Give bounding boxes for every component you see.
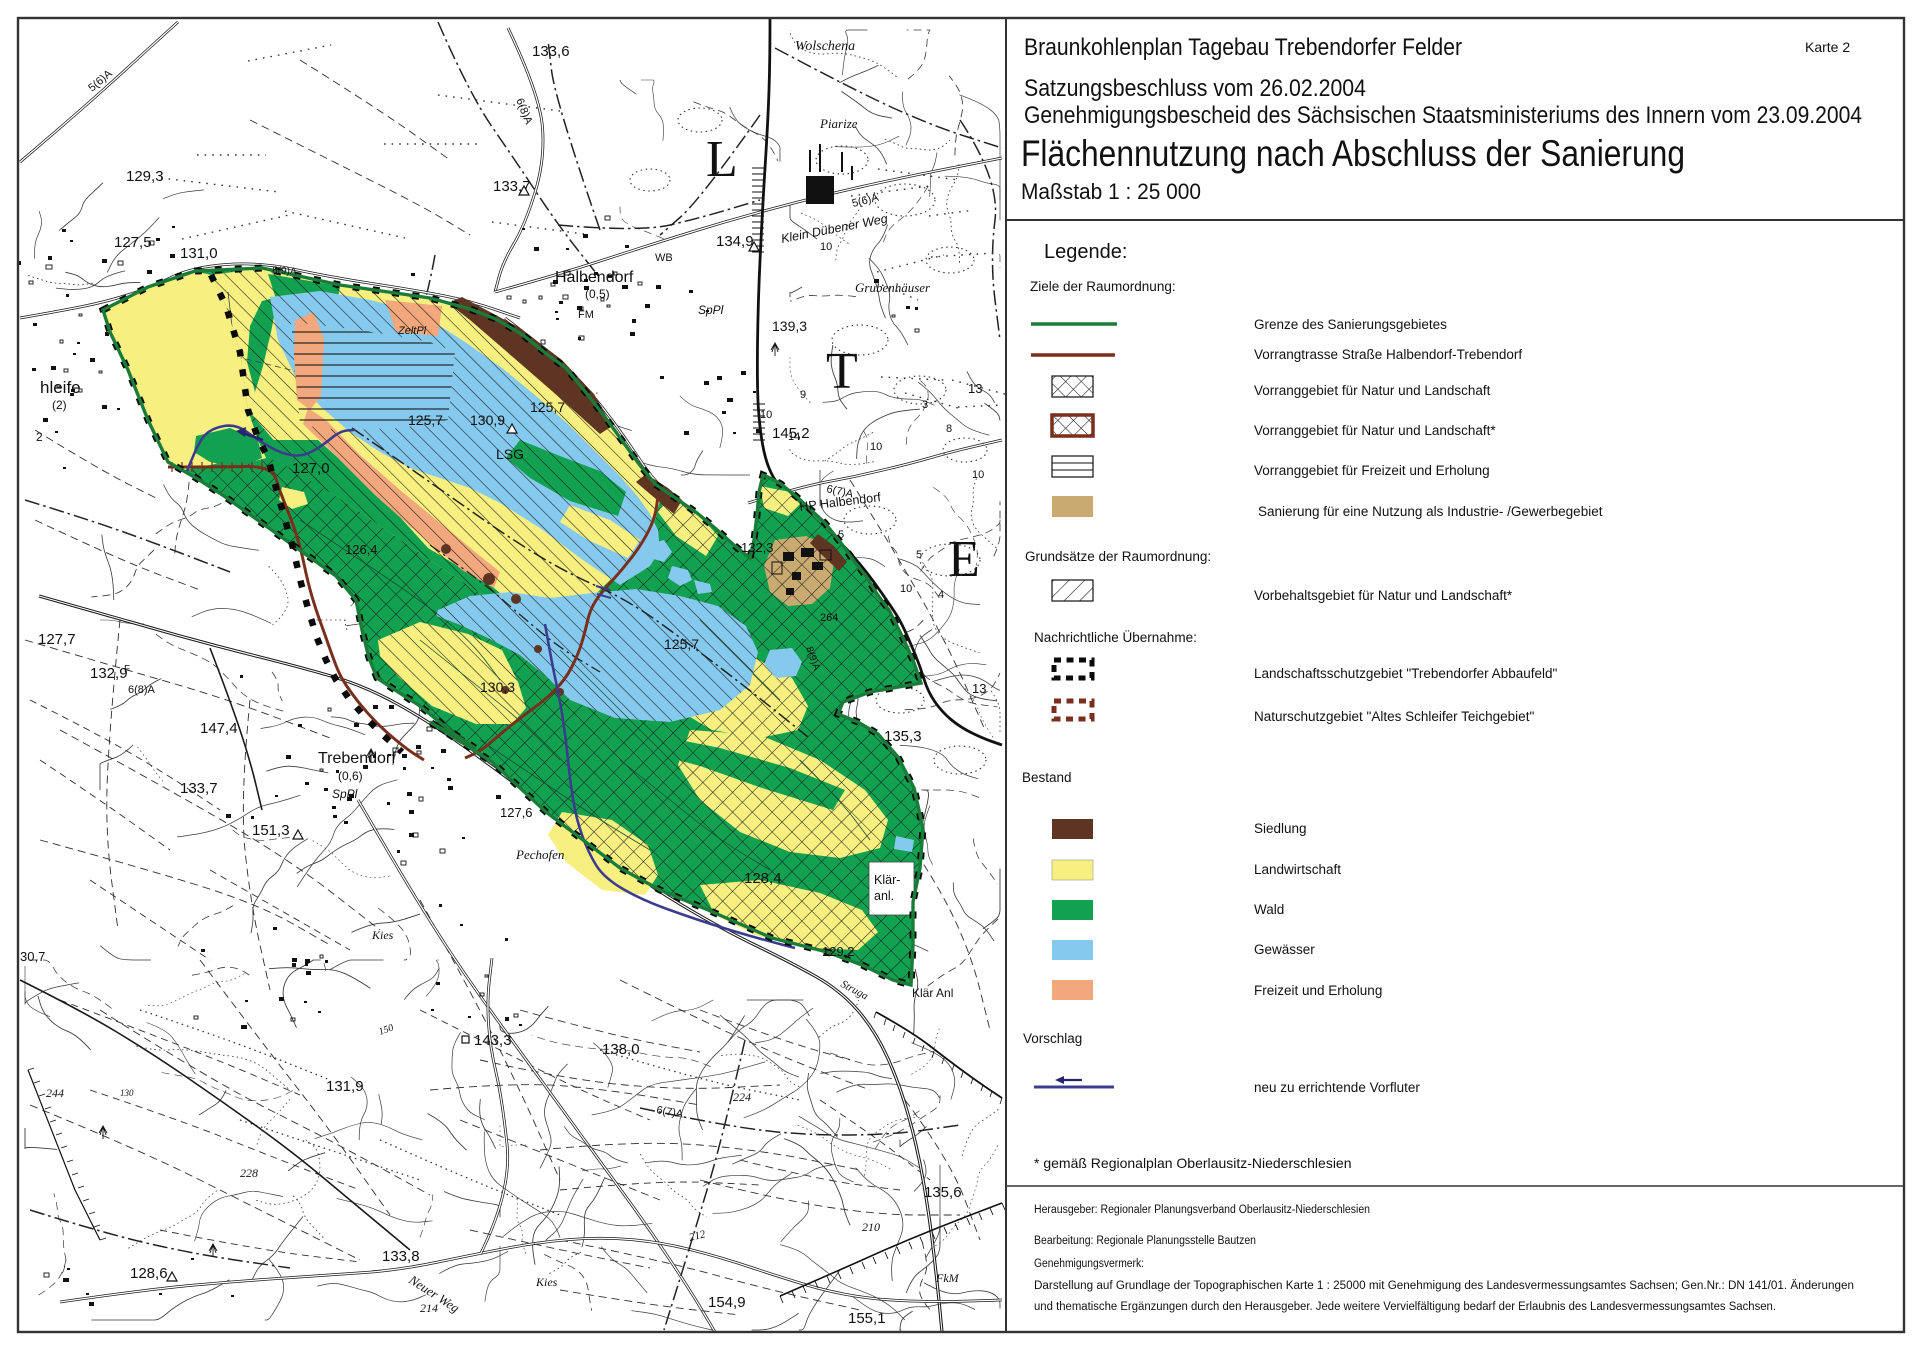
svg-text:5: 5 bbox=[838, 529, 844, 541]
svg-text:Grenze des Sanierungsgebietes: Grenze des Sanierungsgebietes bbox=[1254, 317, 1447, 332]
svg-text:154,9: 154,9 bbox=[708, 1294, 746, 1311]
svg-text:5: 5 bbox=[916, 549, 922, 561]
svg-text:126,4: 126,4 bbox=[345, 542, 378, 557]
svg-text:10: 10 bbox=[760, 409, 772, 421]
svg-text:anl.: anl. bbox=[874, 889, 894, 903]
svg-text:130: 130 bbox=[120, 1088, 134, 1098]
svg-text:Piarize: Piarize bbox=[819, 116, 858, 131]
svg-text:151,3: 151,3 bbox=[252, 822, 290, 839]
svg-text:6(8)A: 6(8)A bbox=[128, 684, 156, 696]
svg-text:143,3: 143,3 bbox=[474, 1032, 512, 1049]
svg-text:13: 13 bbox=[972, 681, 986, 696]
svg-text:Freizeit und Erholung: Freizeit und Erholung bbox=[1254, 983, 1382, 998]
svg-text:131,9: 131,9 bbox=[326, 1078, 364, 1095]
svg-text:132,3: 132,3 bbox=[741, 540, 774, 555]
svg-text:135,6: 135,6 bbox=[924, 1184, 962, 1201]
svg-text:Kies: Kies bbox=[535, 1275, 558, 1289]
svg-text:138,0: 138,0 bbox=[602, 1041, 640, 1058]
svg-text:Gewässer: Gewässer bbox=[1254, 942, 1315, 957]
svg-text:8(9)A: 8(9)A bbox=[272, 265, 297, 278]
svg-text:10: 10 bbox=[870, 441, 882, 453]
svg-text:133,7: 133,7 bbox=[180, 780, 218, 797]
svg-text:129,3: 129,3 bbox=[126, 168, 164, 185]
svg-text:Vorbehaltsgebiet für Natur und: Vorbehaltsgebiet für Natur und Landschaf… bbox=[1254, 588, 1513, 603]
svg-text:139,3: 139,3 bbox=[772, 318, 807, 334]
svg-text:244: 244 bbox=[46, 1086, 64, 1100]
svg-text:8: 8 bbox=[946, 423, 952, 435]
svg-text:Flächennutzung nach Abschluss: Flächennutzung nach Abschluss der Sanier… bbox=[1021, 133, 1685, 174]
svg-text:129,2: 129,2 bbox=[822, 944, 855, 959]
svg-text:* gemäß Regionalplan Oberlausi: * gemäß Regionalplan Oberlausitz-Nieders… bbox=[1034, 1155, 1352, 1171]
svg-text:Kies: Kies bbox=[371, 928, 394, 942]
svg-text:T: T bbox=[826, 343, 858, 400]
svg-text:FkM: FkM bbox=[935, 1271, 960, 1285]
svg-text:4: 4 bbox=[938, 589, 944, 601]
svg-text:(0,6): (0,6) bbox=[338, 769, 363, 783]
svg-text:Vorranggebiet für Freizeit und: Vorranggebiet für Freizeit und Erholung bbox=[1254, 463, 1490, 478]
svg-text:Nachrichtliche Übernahme:: Nachrichtliche Übernahme: bbox=[1034, 630, 1197, 645]
svg-text:Grundsätze der Raumordnung:: Grundsätze der Raumordnung: bbox=[1025, 549, 1211, 564]
svg-text:224: 224 bbox=[733, 1090, 751, 1104]
svg-text:10: 10 bbox=[820, 241, 832, 253]
svg-text:Siedlung: Siedlung bbox=[1254, 821, 1307, 836]
svg-text:hleife: hleife bbox=[40, 378, 81, 397]
svg-text:Bestand: Bestand bbox=[1022, 770, 1072, 785]
svg-text:ZeltPl: ZeltPl bbox=[397, 325, 427, 337]
svg-text:Maßstab 1 : 25 000: Maßstab 1 : 25 000 bbox=[1021, 179, 1201, 204]
svg-text:133,8: 133,8 bbox=[382, 1248, 420, 1265]
svg-text:Landwirtschaft: Landwirtschaft bbox=[1254, 862, 1341, 877]
svg-text:Wolschena: Wolschena bbox=[795, 39, 855, 54]
svg-text:LSG: LSG bbox=[496, 446, 524, 462]
svg-text:Herausgeber: Regionaler Planun: Herausgeber: Regionaler Planungsverband … bbox=[1034, 1204, 1370, 1216]
svg-text:Grubenhäuser: Grubenhäuser bbox=[855, 280, 931, 295]
svg-text:Vorrangtrasse Straße Halbendor: Vorrangtrasse Straße Halbendorf-Trebendo… bbox=[1254, 347, 1522, 362]
svg-text:131,0: 131,0 bbox=[180, 245, 218, 262]
svg-text:Vorranggebiet für Natur und La: Vorranggebiet für Natur und Landschaft* bbox=[1254, 423, 1496, 438]
svg-text:Landschaftsschutzgebiet "Trebe: Landschaftsschutzgebiet "Trebendorfer Ab… bbox=[1254, 666, 1557, 681]
svg-text:133,6: 133,6 bbox=[532, 43, 570, 60]
svg-text:Legende:: Legende: bbox=[1044, 241, 1127, 263]
svg-text:(2): (2) bbox=[52, 398, 67, 412]
svg-text:Wald: Wald bbox=[1254, 902, 1284, 917]
svg-text:14: 14 bbox=[788, 431, 800, 443]
svg-text:264: 264 bbox=[820, 612, 838, 624]
svg-text:F: F bbox=[124, 664, 130, 675]
svg-text:135,3: 135,3 bbox=[884, 728, 922, 745]
svg-text:128,4: 128,4 bbox=[744, 870, 782, 887]
svg-text:30,7: 30,7 bbox=[20, 949, 45, 964]
svg-text:(0,5): (0,5) bbox=[585, 287, 610, 301]
svg-text:und thematische Ergänzungen du: und thematische Ergänzungen durch den He… bbox=[1034, 1301, 1776, 1313]
svg-text:Pechofen: Pechofen bbox=[515, 847, 564, 862]
svg-text:13: 13 bbox=[968, 381, 982, 396]
svg-text:2: 2 bbox=[36, 430, 43, 444]
svg-text:210: 210 bbox=[862, 1220, 880, 1234]
svg-text:3: 3 bbox=[922, 399, 928, 411]
svg-text:Trebendorf: Trebendorf bbox=[318, 750, 396, 767]
svg-text:125,7: 125,7 bbox=[530, 399, 565, 415]
svg-text:Braunkohlenplan Tagebau Treben: Braunkohlenplan Tagebau Trebendorfer Fel… bbox=[1024, 34, 1462, 61]
svg-text:Klär Anl: Klär Anl bbox=[912, 986, 953, 1000]
svg-text:130,3: 130,3 bbox=[480, 679, 515, 695]
svg-text:127,7: 127,7 bbox=[38, 631, 76, 648]
svg-text:L: L bbox=[706, 131, 738, 188]
svg-text:134,9: 134,9 bbox=[716, 233, 754, 250]
svg-text:Ziele der Raumordnung:: Ziele der Raumordnung: bbox=[1030, 279, 1176, 294]
svg-text:10: 10 bbox=[900, 583, 912, 595]
svg-text:Genehmigungsvermerk:: Genehmigungsvermerk: bbox=[1034, 1258, 1144, 1270]
svg-text:127,0: 127,0 bbox=[292, 460, 330, 477]
svg-text:Darstellung auf Grundlage der: Darstellung auf Grundlage der Topographi… bbox=[1034, 1280, 1854, 1292]
svg-text:Naturschutzgebiet "Altes Schle: Naturschutzgebiet "Altes Schleifer Teich… bbox=[1254, 709, 1534, 724]
svg-text:Sanierung für eine Nutzung als: Sanierung für eine Nutzung als Industrie… bbox=[1258, 504, 1603, 519]
svg-text:Karte 2: Karte 2 bbox=[1805, 39, 1850, 55]
svg-text:FM: FM bbox=[578, 309, 594, 321]
svg-text:neu zu errichtende Vorfluter: neu zu errichtende Vorfluter bbox=[1254, 1080, 1420, 1095]
svg-text:125,7: 125,7 bbox=[408, 412, 443, 428]
svg-text:10: 10 bbox=[972, 469, 984, 481]
svg-text:125,7: 125,7 bbox=[664, 636, 699, 652]
svg-text:WB: WB bbox=[655, 252, 673, 264]
svg-text:Vorranggebiet für Natur und La: Vorranggebiet für Natur und Landschaft bbox=[1254, 383, 1491, 398]
svg-text:Halbendorf: Halbendorf bbox=[555, 269, 634, 286]
svg-text:127,6: 127,6 bbox=[500, 805, 533, 820]
svg-text:147,4: 147,4 bbox=[200, 720, 238, 737]
svg-text:128,6: 128,6 bbox=[130, 1265, 168, 1282]
svg-text:Bearbeitung: Regionale Planung: Bearbeitung: Regionale Planungsstelle Ba… bbox=[1034, 1235, 1256, 1247]
svg-text:SpPl: SpPl bbox=[698, 303, 724, 317]
svg-text:9: 9 bbox=[800, 389, 806, 401]
svg-text:228: 228 bbox=[240, 1166, 258, 1180]
svg-text:Genehmigungsbescheid des Sächs: Genehmigungsbescheid des Sächsischen Sta… bbox=[1024, 102, 1862, 129]
svg-text:132,9: 132,9 bbox=[90, 665, 128, 682]
svg-text:SpPl: SpPl bbox=[332, 787, 358, 801]
svg-text:Klär-: Klär- bbox=[874, 873, 900, 887]
svg-text:127,5: 127,5 bbox=[114, 234, 152, 251]
svg-text:E: E bbox=[948, 531, 980, 588]
svg-text:Vorschlag: Vorschlag bbox=[1023, 1031, 1082, 1046]
svg-text:Satzungsbeschluss vom 26.02.20: Satzungsbeschluss vom 26.02.2004 bbox=[1024, 75, 1366, 102]
svg-text:130,9: 130,9 bbox=[470, 412, 505, 428]
